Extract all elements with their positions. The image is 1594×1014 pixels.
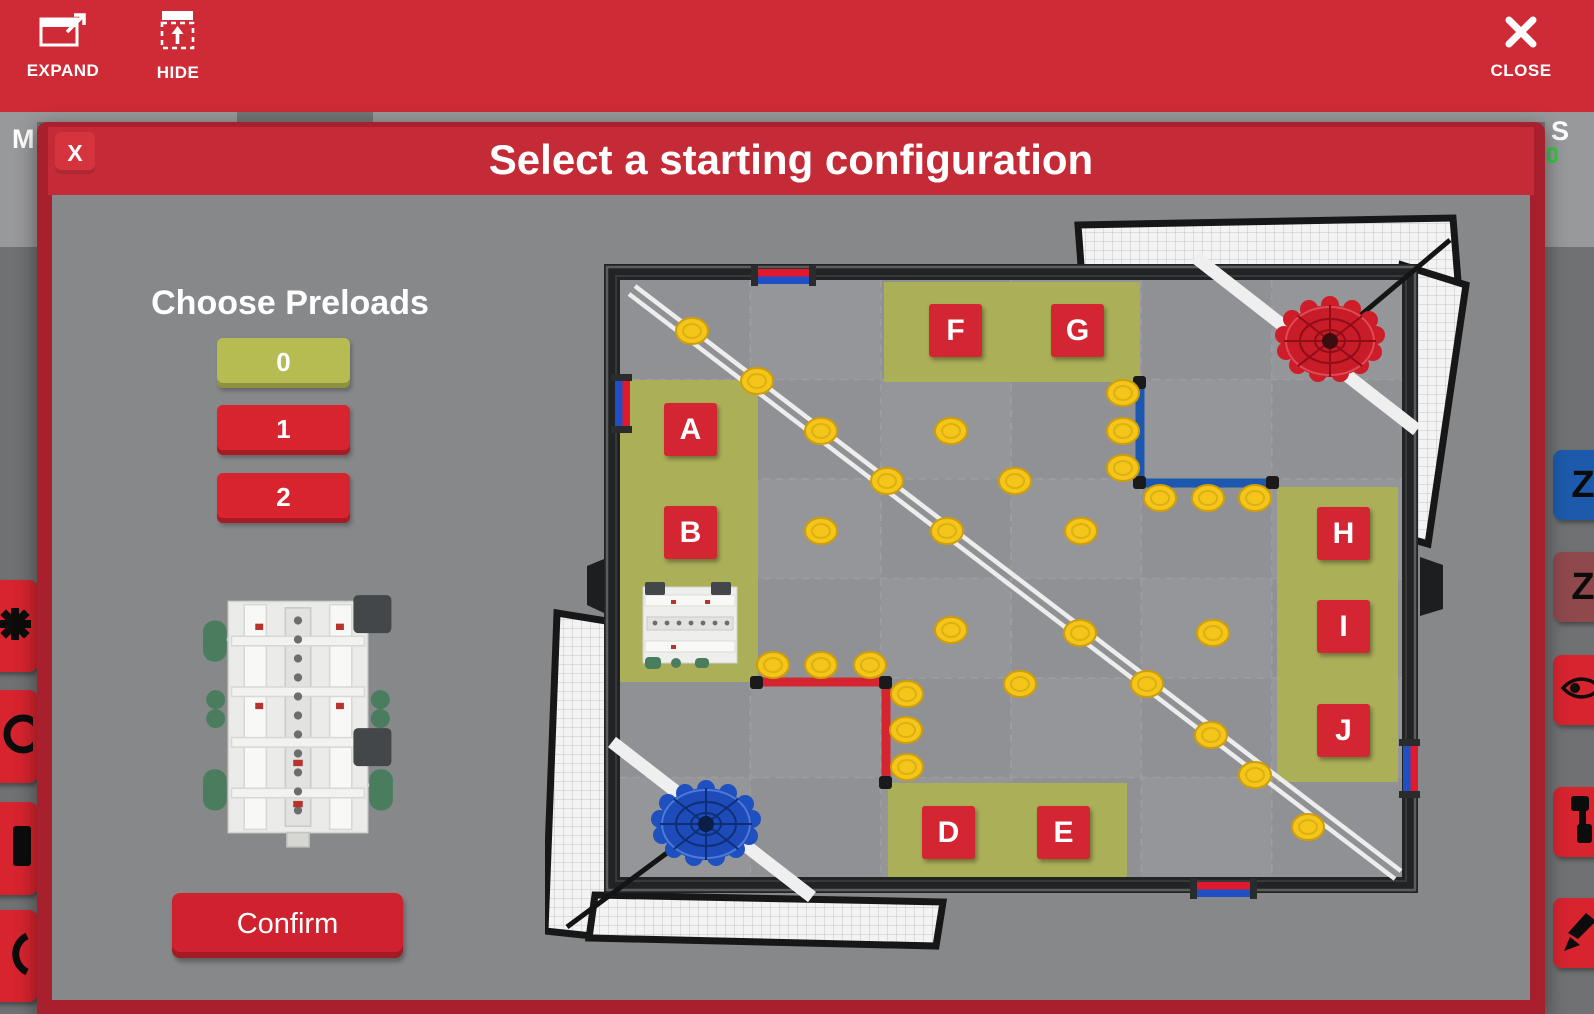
background-right-panel-count: 0 [1546, 142, 1559, 169]
hide-button[interactable]: HIDE [148, 8, 208, 83]
expand-button[interactable]: EXPAND [22, 10, 104, 81]
sidebar-right-button-draw[interactable] [1553, 898, 1594, 968]
robot-top-view [203, 595, 393, 847]
preloads-heading: Choose Preloads [140, 284, 440, 323]
left-wall-wedge [587, 559, 604, 613]
sidebar-left-button-gear[interactable] [0, 580, 38, 672]
field-position-e[interactable]: E [1037, 806, 1090, 859]
crescent-icon [0, 930, 33, 983]
sidebar-right-button-z-maroon[interactable]: Z [1553, 552, 1594, 622]
sidebar-left-button-crescent[interactable] [0, 910, 38, 1002]
expand-button-label: EXPAND [22, 61, 104, 81]
x-icon [1503, 37, 1539, 54]
eye-icon [1561, 671, 1594, 710]
right-wall-wedge [1420, 557, 1443, 616]
sidebar-right-button-z-blue[interactable]: Z [1553, 450, 1594, 520]
sidebar-right-button-link[interactable] [1553, 787, 1594, 857]
modal-header: Select a starting configuration [48, 127, 1534, 195]
preload-option-0[interactable]: 0 [217, 338, 350, 388]
background-strip-notch [237, 112, 373, 122]
app-window: M S 0 Z Z [0, 0, 1594, 1014]
close-button[interactable]: CLOSE [1482, 14, 1560, 81]
close-button-label: CLOSE [1482, 61, 1560, 81]
field-top-view: A B D E F G H I J [545, 205, 1480, 950]
field-position-d[interactable]: D [922, 806, 975, 859]
field-position-f[interactable]: F [929, 304, 982, 357]
sidebar-right-button-eye[interactable] [1553, 655, 1594, 725]
link-icon [1565, 794, 1594, 851]
sidebar-left-button-panel[interactable] [0, 802, 38, 895]
z-letter-icon: Z [1571, 566, 1594, 609]
field-position-j[interactable]: J [1317, 704, 1370, 757]
field-position-g[interactable]: G [1051, 304, 1104, 357]
modal-close-button[interactable]: X [55, 132, 95, 174]
top-toolbar [0, 0, 1594, 112]
draw-icon [1562, 907, 1594, 960]
panel-icon [0, 822, 33, 875]
background-left-panel-label: M [12, 124, 35, 155]
circle-icon [0, 712, 33, 761]
field-position-b[interactable]: B [664, 506, 717, 559]
sidebar-left-button-circle[interactable] [0, 690, 38, 783]
field-position-a[interactable]: A [664, 403, 717, 456]
field-position-i[interactable]: I [1317, 600, 1370, 653]
confirm-button[interactable]: Confirm [172, 893, 403, 958]
z-letter-icon: Z [1571, 464, 1594, 507]
robot-preview-image [203, 592, 393, 855]
field-position-h[interactable]: H [1317, 507, 1370, 560]
field-robot-sprite[interactable] [643, 582, 737, 669]
hide-panel-icon [159, 39, 197, 56]
expand-window-icon [39, 37, 87, 54]
gear-icon [0, 604, 33, 649]
preload-option-1[interactable]: 1 [217, 405, 350, 455]
preload-option-2[interactable]: 2 [217, 473, 350, 523]
hide-button-label: HIDE [148, 63, 208, 83]
modal-title: Select a starting configuration [48, 127, 1534, 193]
